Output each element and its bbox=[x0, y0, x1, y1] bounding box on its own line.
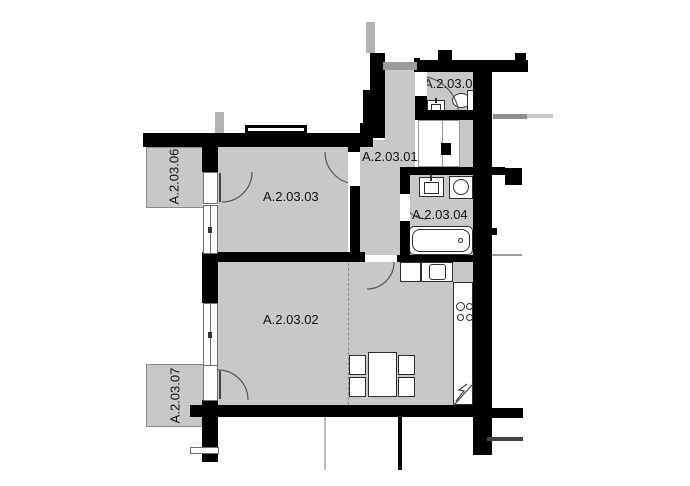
wall-segment bbox=[515, 53, 526, 61]
wall-segment bbox=[190, 405, 473, 417]
room-label-a20306: A.2.03.06 bbox=[167, 149, 182, 205]
room-label-a20304: A.2.03.04 bbox=[412, 207, 468, 222]
wc-sink-tap bbox=[435, 98, 437, 103]
room-label-a20305: A.2.03.05 bbox=[424, 76, 480, 91]
wall-segment bbox=[438, 50, 452, 60]
dining-chair bbox=[349, 377, 366, 397]
window-tick bbox=[208, 227, 212, 233]
wall-segment bbox=[350, 186, 360, 252]
room-label-a20302: A.2.03.02 bbox=[263, 312, 319, 327]
exterior-rail bbox=[493, 114, 527, 119]
washing-machine-drum bbox=[453, 179, 469, 195]
wall-segment bbox=[398, 417, 402, 470]
balcony-door-a20307 bbox=[203, 365, 218, 401]
wall-segment bbox=[202, 133, 218, 172]
wall-segment bbox=[415, 95, 427, 110]
door-opening bbox=[400, 194, 410, 221]
door-opening bbox=[348, 152, 360, 186]
window-bar bbox=[245, 125, 307, 134]
wall-segment bbox=[202, 252, 365, 262]
exterior-wall-line bbox=[487, 437, 523, 441]
dining-chair bbox=[398, 355, 415, 375]
wall-segment bbox=[143, 133, 362, 147]
bathroom-sink-basin bbox=[424, 182, 439, 194]
dining-chair bbox=[398, 377, 415, 397]
wall-segment bbox=[360, 123, 373, 147]
entrance-door bbox=[383, 62, 417, 70]
corridor-floor-entry bbox=[385, 62, 415, 147]
wall-segment bbox=[473, 60, 492, 455]
wall-segment bbox=[415, 60, 528, 72]
wall-segment bbox=[441, 143, 451, 155]
wall-segment bbox=[490, 167, 505, 175]
exterior-rail bbox=[527, 114, 553, 118]
wall-segment bbox=[348, 143, 360, 152]
cooktop-burner-1 bbox=[456, 302, 465, 311]
kitchen-divider-dashed-line bbox=[348, 263, 349, 405]
exterior-wall-line bbox=[324, 417, 326, 470]
window bbox=[203, 205, 218, 254]
window-below bbox=[190, 447, 219, 454]
balcony-door-a20306 bbox=[203, 172, 218, 204]
cooktop-burner-4 bbox=[466, 314, 473, 321]
room-label-a20307: A.2.03.07 bbox=[168, 368, 183, 424]
bathroom-sink-tap bbox=[430, 175, 432, 181]
room-label-a20301: A.2.03.01 bbox=[362, 149, 418, 164]
dining-chair bbox=[349, 355, 366, 375]
window-tick bbox=[208, 332, 212, 338]
exterior-wall-stub bbox=[215, 112, 224, 133]
bathtub-drain bbox=[458, 238, 463, 243]
wall-segment bbox=[400, 221, 410, 257]
kitchen-counter-top bbox=[400, 262, 421, 282]
living-room-floor bbox=[218, 262, 473, 405]
door-opening bbox=[415, 72, 427, 96]
dining-table bbox=[368, 352, 397, 397]
exterior-wall-stub bbox=[366, 22, 375, 53]
wall-segment bbox=[400, 175, 410, 194]
wall-segment bbox=[492, 228, 497, 235]
floor-plan: A.2.03.01 A.2.03.02 A.2.03.03 A.2.03.04 … bbox=[0, 0, 690, 486]
cooktop-burner-3 bbox=[457, 314, 464, 321]
wall-segment bbox=[487, 408, 523, 418]
shaft-side-floor bbox=[460, 120, 473, 167]
wall-segment bbox=[505, 168, 522, 185]
wall-segment bbox=[415, 110, 478, 120]
kitchen-sink-icon bbox=[429, 264, 446, 280]
cooktop-burner-2 bbox=[466, 303, 473, 310]
kitchen-counter-right bbox=[453, 282, 473, 405]
wall-segment bbox=[202, 453, 218, 462]
window bbox=[203, 303, 218, 366]
wall-segment bbox=[400, 167, 477, 175]
room-label-a20303: A.2.03.03 bbox=[263, 189, 319, 204]
installation-shaft bbox=[418, 120, 460, 167]
